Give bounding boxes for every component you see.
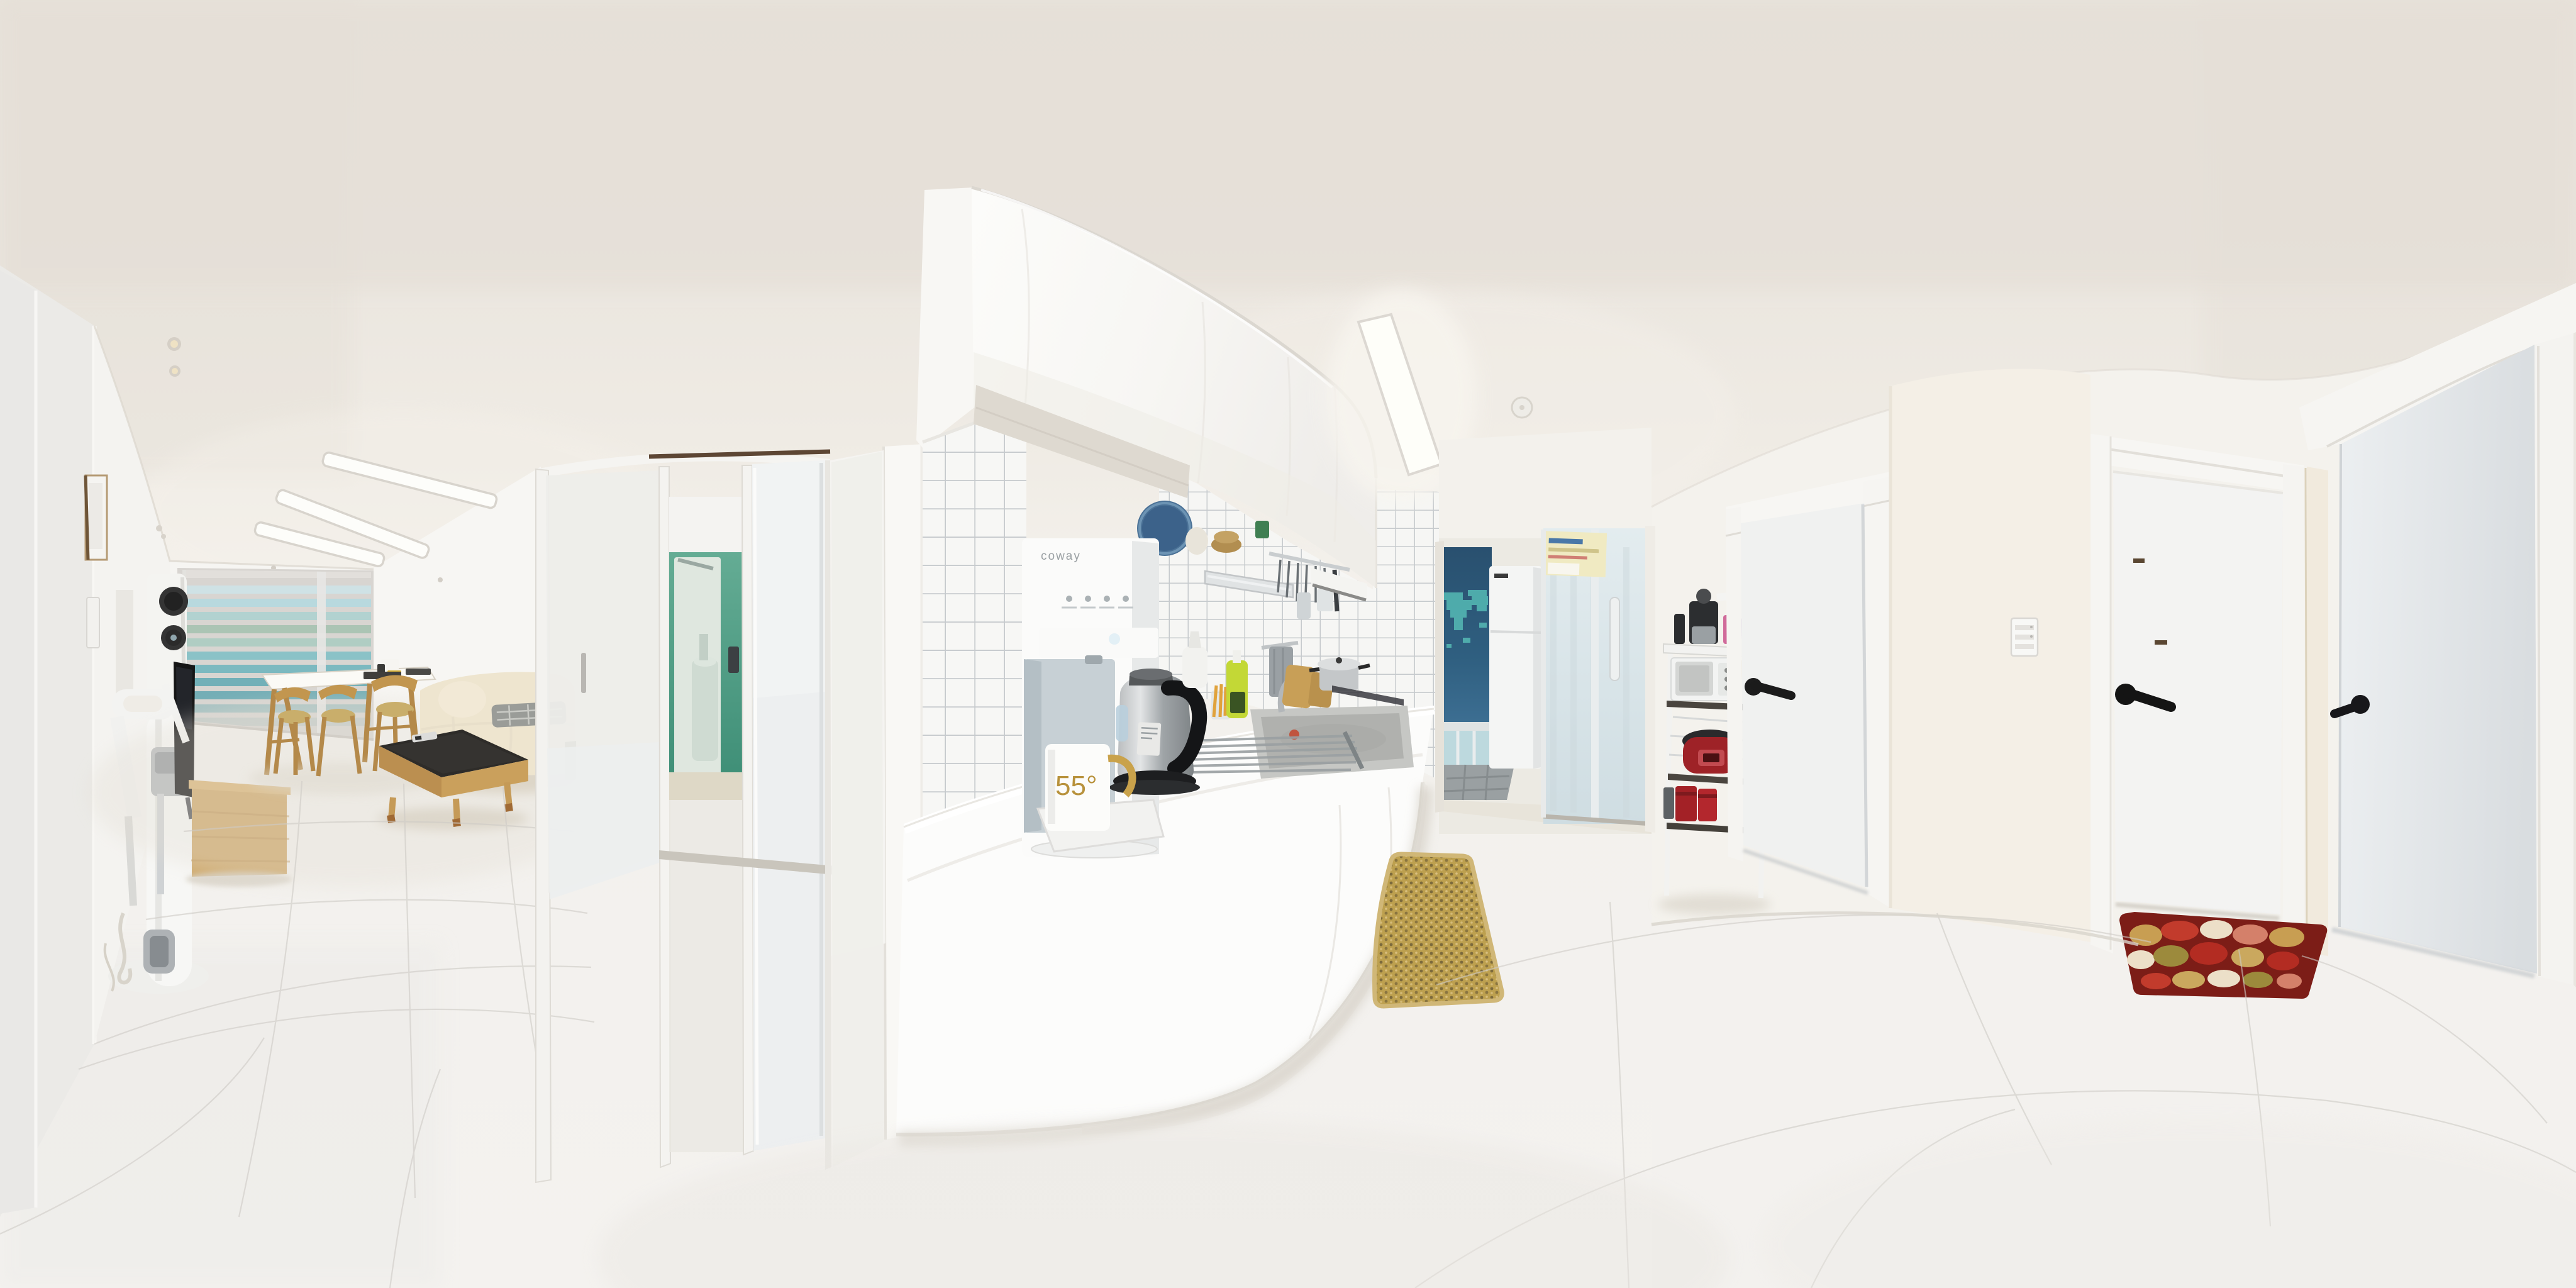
svg-text:55°: 55° <box>1055 770 1097 801</box>
svg-text:coway: coway <box>1041 550 1081 563</box>
